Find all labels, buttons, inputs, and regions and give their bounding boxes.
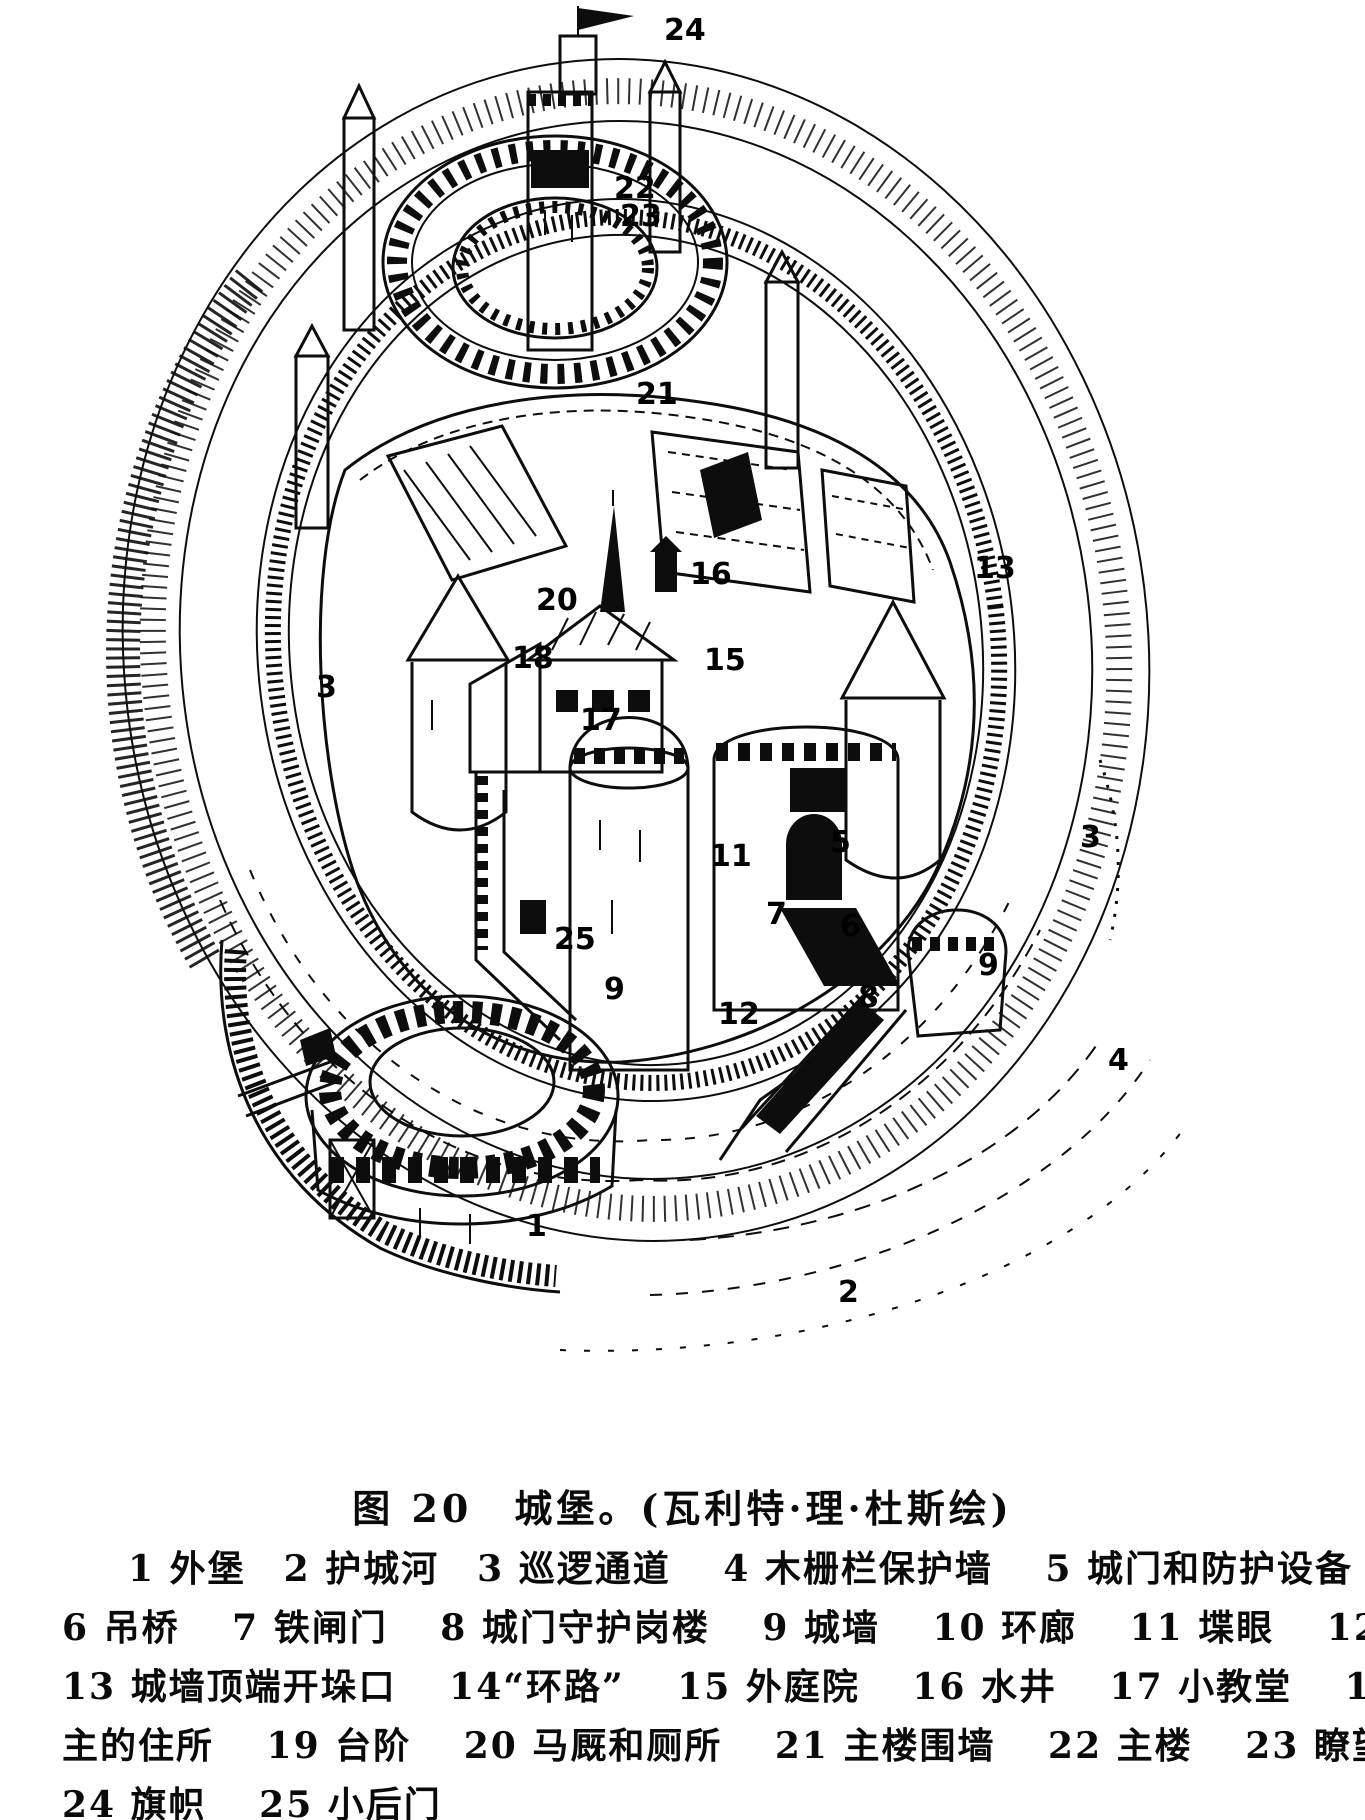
- legend-line-2: 6 吊桥 7 铁闸门 8 城门守护岗楼 9 城墙 10 环廊 11 堞眼 12 …: [62, 1599, 1322, 1658]
- callout-3-left: 3: [316, 670, 337, 705]
- callout-4: 4: [1108, 1043, 1129, 1078]
- castle-drawing: 2422232116201315181733115768259912412: [0, 0, 1365, 1460]
- figure-legend: 1 外堡 2 护城河 3 巡逻通道 4 木栅栏保护墙 5 城门和防护设备 6 吊…: [62, 1540, 1322, 1820]
- callout-3-right: 3: [1080, 820, 1101, 855]
- legend-line-1: 1 外堡 2 护城河 3 巡逻通道 4 木栅栏保护墙 5 城门和防护设备: [62, 1540, 1322, 1599]
- flag-icon: [578, 8, 634, 30]
- chapel: [470, 490, 674, 772]
- callout-9-right: 9: [978, 948, 999, 983]
- callout-23: 23: [620, 199, 662, 234]
- inner-ward-towers: [296, 62, 798, 528]
- callout-11: 11: [710, 839, 752, 874]
- barbican: [306, 996, 618, 1244]
- callout-25: 25: [554, 922, 596, 957]
- callout-13: 13: [974, 551, 1016, 586]
- west-wall: [476, 772, 576, 1040]
- legend-line-5: 24 旗帜 25 小后门: [62, 1776, 1322, 1820]
- callout-24: 24: [664, 13, 706, 48]
- callout-21: 21: [636, 377, 678, 412]
- scanned-book-page: 2422232116201315181733115768259912412 图 …: [0, 0, 1365, 1820]
- callout-16: 16: [690, 557, 732, 592]
- callout-2: 2: [838, 1275, 859, 1310]
- callout-17: 17: [580, 703, 622, 738]
- well: [650, 536, 682, 592]
- callout-1: 1: [526, 1209, 547, 1244]
- callout-7: 7: [766, 897, 787, 932]
- courtyard-hall: [388, 426, 566, 580]
- callout-9-left: 9: [604, 972, 625, 1007]
- castle-diagram: 2422232116201315181733115768259912412: [0, 0, 1365, 1460]
- callout-6: 6: [840, 909, 861, 944]
- callout-8: 8: [858, 980, 879, 1015]
- figure-caption: 图 20 城堡。(瓦利特·理·杜斯绘): [0, 1478, 1365, 1533]
- callout-12: 12: [718, 997, 760, 1032]
- legend-line-3: 13 城墙顶端开垛口 14“环路” 15 外庭院 16 水井 17 小教堂 18…: [62, 1658, 1322, 1717]
- callout-15: 15: [704, 643, 746, 678]
- callout-5: 5: [830, 825, 851, 860]
- callout-20: 20: [536, 583, 578, 618]
- callout-18: 18: [512, 641, 554, 676]
- legend-line-4: 主的住所 19 台阶 20 马厩和厕所 21 主楼围墙 22 主楼 23 瞭望塔: [62, 1717, 1322, 1776]
